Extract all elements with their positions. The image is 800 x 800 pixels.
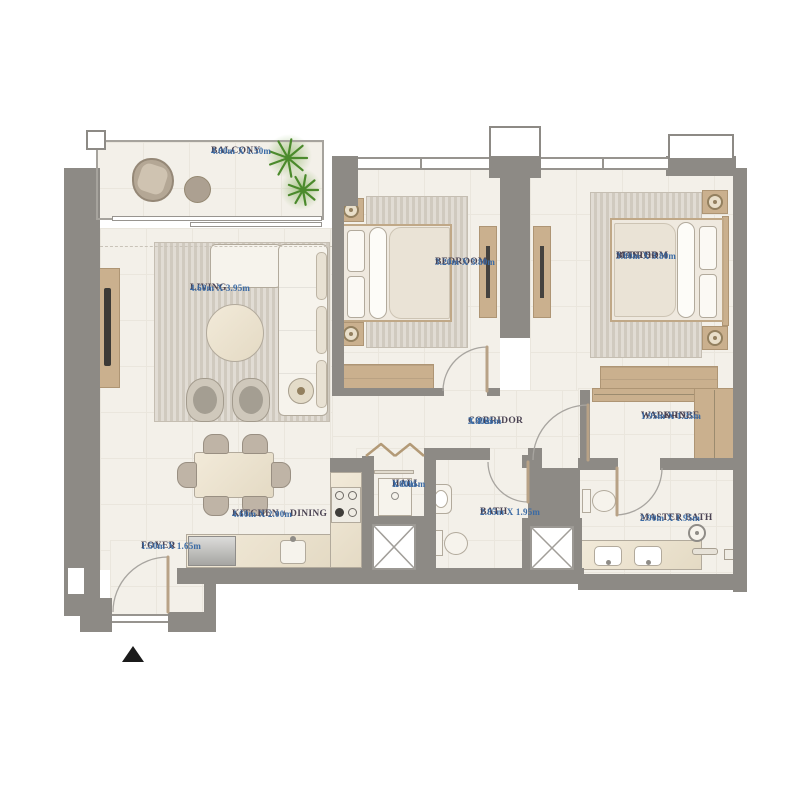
dining-chair bbox=[177, 462, 197, 488]
bed-pillow bbox=[347, 230, 365, 272]
sofa-back-cushion bbox=[316, 360, 327, 408]
bath-sink-basin bbox=[434, 490, 448, 508]
wall-notch bbox=[68, 568, 84, 594]
room-dims: 2.85m X 1.95m bbox=[480, 507, 540, 518]
master-window bbox=[541, 157, 668, 170]
dining-chair bbox=[203, 496, 229, 516]
closet-rail bbox=[714, 390, 715, 464]
sofa-chaise bbox=[210, 244, 282, 288]
duct-shaft bbox=[372, 524, 416, 570]
wall-bedroom-bottom-stub bbox=[487, 388, 500, 396]
dining-table bbox=[194, 452, 274, 498]
mbath-sink-faucet bbox=[606, 560, 611, 565]
room-dims: 2.90m X 1.95m bbox=[640, 513, 700, 524]
wall-left-outer bbox=[64, 168, 100, 616]
column-top-right bbox=[668, 134, 734, 160]
bed-duvet bbox=[614, 223, 676, 317]
master-wardrobe bbox=[600, 366, 718, 390]
armchair-seat bbox=[239, 386, 263, 414]
room-dims: 4.00m X 1.50m bbox=[211, 146, 271, 157]
wall-bath-left bbox=[424, 456, 436, 572]
ceiling-break-line bbox=[100, 246, 332, 247]
window-mullion bbox=[420, 157, 422, 170]
stove-burner bbox=[335, 491, 344, 500]
wall-foyer-bottom-right bbox=[168, 612, 216, 632]
wall-bath-top bbox=[424, 448, 490, 460]
mbath-toilet-tank bbox=[582, 489, 591, 513]
column-top-mid bbox=[489, 126, 541, 158]
bed-blanket-roll bbox=[369, 227, 387, 319]
bed-duvet bbox=[389, 227, 450, 319]
mbath-sink-faucet bbox=[646, 560, 651, 565]
wall-inter-bedroom bbox=[500, 178, 530, 338]
mbath-toilet-bowl bbox=[592, 490, 616, 512]
bedroom-dresser-tv bbox=[486, 246, 490, 298]
balcony-outline bbox=[96, 140, 324, 220]
sofa-back-cushion bbox=[316, 306, 327, 354]
dining-chair bbox=[271, 462, 291, 488]
side-table-dot bbox=[297, 387, 305, 395]
room-dims: X 0.95m bbox=[392, 479, 425, 490]
shower-bar bbox=[692, 548, 718, 555]
closet-rail bbox=[594, 394, 694, 395]
room-dims: 4.60m X 3.95m bbox=[190, 283, 250, 294]
wall-bedroom-corner bbox=[332, 156, 358, 206]
bedroom-window bbox=[358, 157, 489, 170]
wall-foyer-left bbox=[80, 598, 112, 632]
sofa-back-cushion bbox=[316, 252, 327, 300]
armchair-seat bbox=[193, 386, 217, 414]
wall-living-bedroom bbox=[332, 206, 344, 392]
bedroom-wardrobe bbox=[338, 364, 434, 390]
nightstand-lamp bbox=[707, 194, 723, 210]
walkin-closet-right bbox=[694, 388, 736, 466]
wall-walkin-left bbox=[580, 390, 590, 460]
wall-bottom-main bbox=[177, 568, 584, 584]
wall-masterbath-bottom bbox=[578, 574, 747, 590]
stove-burner bbox=[348, 508, 357, 517]
duct-shaft bbox=[530, 526, 574, 570]
wall-walkin-bottom-right bbox=[660, 458, 736, 470]
wall-pocket-gap bbox=[504, 338, 526, 390]
stove-burner bbox=[335, 508, 344, 517]
wall-bedroom-bottom bbox=[332, 388, 444, 396]
wall-top-mid bbox=[489, 156, 541, 178]
bed-pillow bbox=[699, 226, 717, 270]
stove-burner bbox=[348, 491, 357, 500]
room-dims: 3.20m X 3.80m bbox=[435, 257, 495, 268]
floor-plan-canvas: BALCONY 4.00m X 1.50m LIVING 4.60m X 3.9… bbox=[0, 0, 800, 800]
room-dims: 4.60m X 2.00m bbox=[232, 509, 292, 520]
window-mullion bbox=[602, 157, 604, 170]
room-dims: 1.95m X 1.25m bbox=[641, 411, 701, 422]
sliding-door-rail bbox=[112, 216, 322, 221]
bed-pillow bbox=[699, 274, 717, 318]
coffee-table bbox=[206, 304, 264, 362]
walkin-closet-top bbox=[592, 388, 696, 402]
entry-threshold bbox=[112, 614, 168, 623]
laundry-shelf bbox=[374, 470, 414, 474]
dining-chair bbox=[242, 434, 268, 454]
kitchen-faucet bbox=[290, 536, 296, 542]
washer-knob bbox=[391, 492, 399, 500]
dining-chair bbox=[203, 434, 229, 454]
wall-laundry-stub bbox=[330, 458, 366, 472]
room-dims: 3.80m X 3.80m bbox=[616, 251, 676, 262]
north-marker-icon bbox=[122, 646, 144, 662]
column-balcony bbox=[86, 130, 106, 150]
nightstand-lamp bbox=[707, 330, 723, 346]
kitchen-sink bbox=[280, 540, 306, 564]
wall-foyer-step bbox=[204, 584, 216, 614]
room-dims: 1.50m X 1.65m bbox=[141, 541, 201, 552]
wall-right-outer bbox=[733, 168, 747, 592]
nightstand-lamp bbox=[343, 326, 359, 342]
bed-blanket-roll bbox=[677, 222, 695, 318]
tv-screen bbox=[104, 288, 111, 366]
master-dresser-tv bbox=[540, 246, 544, 298]
bath-toilet-bowl bbox=[444, 532, 468, 555]
bed-pillow bbox=[347, 276, 365, 318]
shower-head bbox=[688, 524, 706, 542]
room-dims: X 1.25m bbox=[468, 416, 501, 427]
sliding-door-rail bbox=[190, 222, 322, 227]
